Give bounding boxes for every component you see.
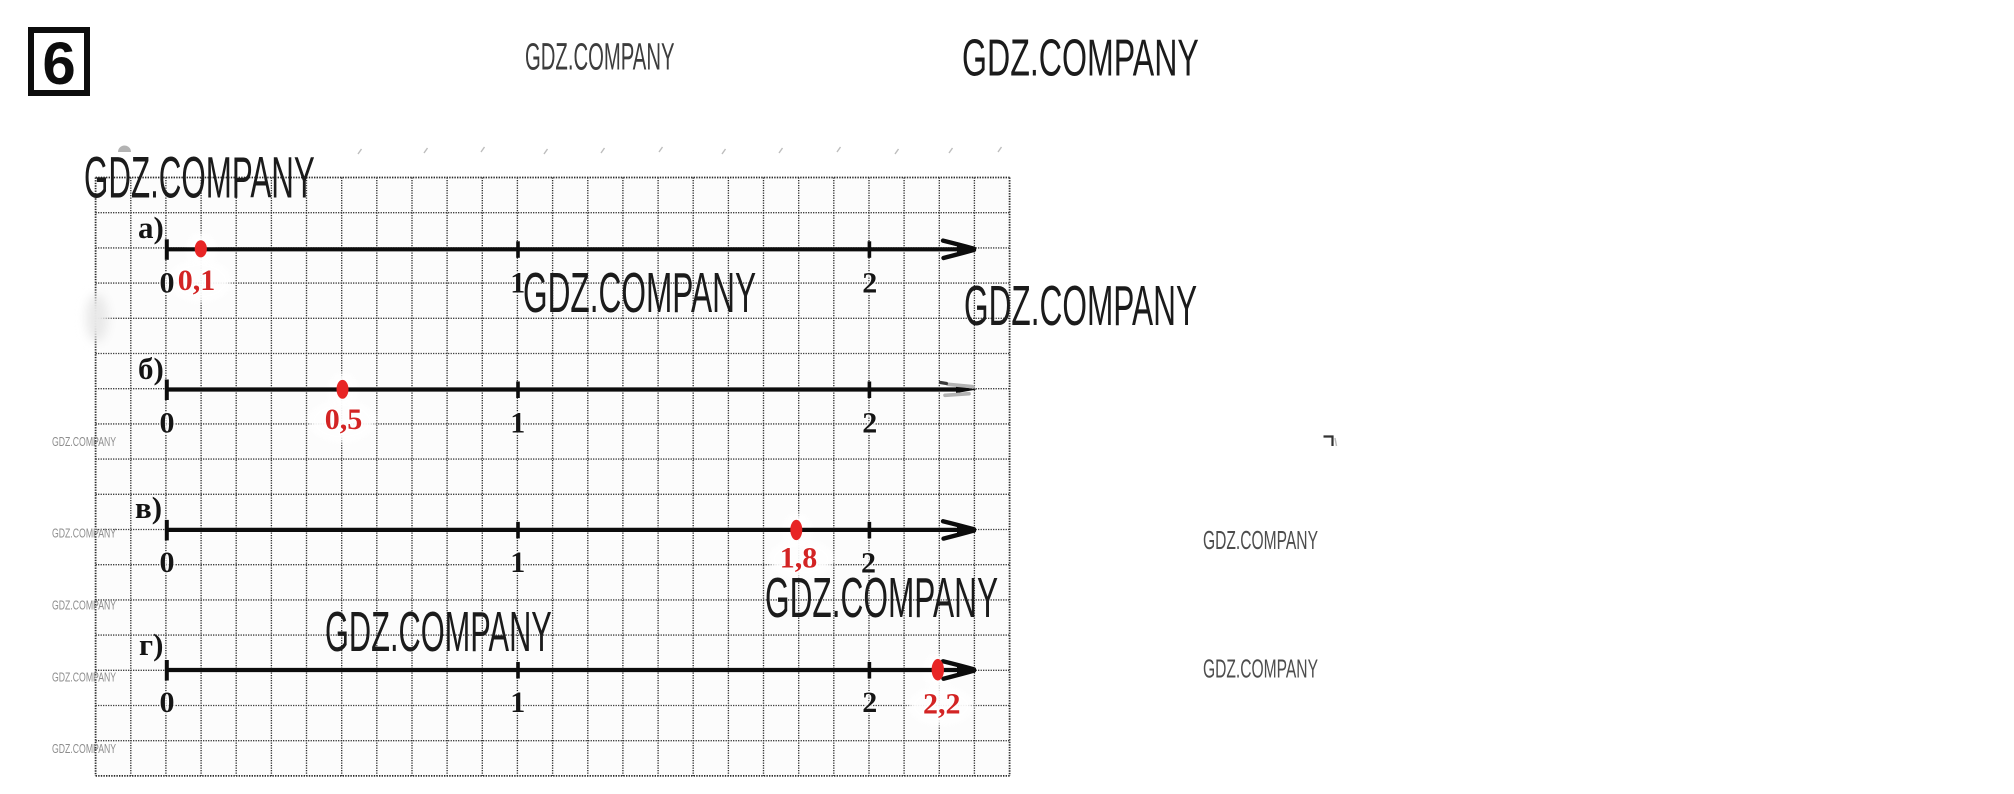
svg-text:2: 2	[862, 407, 877, 440]
svg-text:2,2: 2,2	[923, 688, 961, 721]
svg-text:GDZ.COMPANY: GDZ.COMPANY	[523, 260, 756, 324]
svg-text:GDZ.COMPANY: GDZ.COMPANY	[52, 599, 117, 613]
svg-text:GDZ.COMPANY: GDZ.COMPANY	[52, 527, 117, 541]
svg-text:0,5: 0,5	[325, 403, 363, 436]
svg-text:GDZ.COMPANY: GDZ.COMPANY	[525, 36, 675, 78]
svg-text:GDZ.COMPANY: GDZ.COMPANY	[765, 565, 998, 629]
svg-text:GDZ.COMPANY: GDZ.COMPANY	[52, 671, 117, 685]
svg-text:1: 1	[510, 407, 525, 440]
svg-text:GDZ.COMPANY: GDZ.COMPANY	[84, 145, 315, 210]
svg-text:0,1: 0,1	[178, 264, 216, 297]
svg-text:0: 0	[160, 546, 175, 579]
svg-text:0: 0	[160, 686, 175, 719]
svg-text:б): б)	[138, 351, 164, 386]
svg-text:0: 0	[160, 407, 175, 440]
svg-text:1: 1	[510, 686, 525, 719]
svg-text:а): а)	[138, 210, 164, 245]
svg-text:0: 0	[160, 267, 175, 300]
svg-text:в): в)	[135, 490, 162, 525]
svg-text:GDZ.COMPANY: GDZ.COMPANY	[52, 435, 117, 449]
svg-text:GDZ.COMPANY: GDZ.COMPANY	[962, 30, 1199, 88]
svg-text:6: 6	[42, 30, 75, 97]
svg-text:1: 1	[510, 546, 525, 579]
svg-text:2: 2	[862, 267, 877, 300]
svg-text:2: 2	[862, 686, 877, 719]
svg-text:GDZ.COMPANY: GDZ.COMPANY	[1203, 654, 1318, 683]
svg-text:GDZ.COMPANY: GDZ.COMPANY	[1203, 526, 1318, 555]
svg-text:г): г)	[139, 627, 163, 662]
svg-text:GDZ.COMPANY: GDZ.COMPANY	[325, 600, 552, 663]
svg-text:GDZ.COMPANY: GDZ.COMPANY	[52, 742, 117, 756]
svg-text:GDZ.COMPANY: GDZ.COMPANY	[964, 273, 1197, 337]
